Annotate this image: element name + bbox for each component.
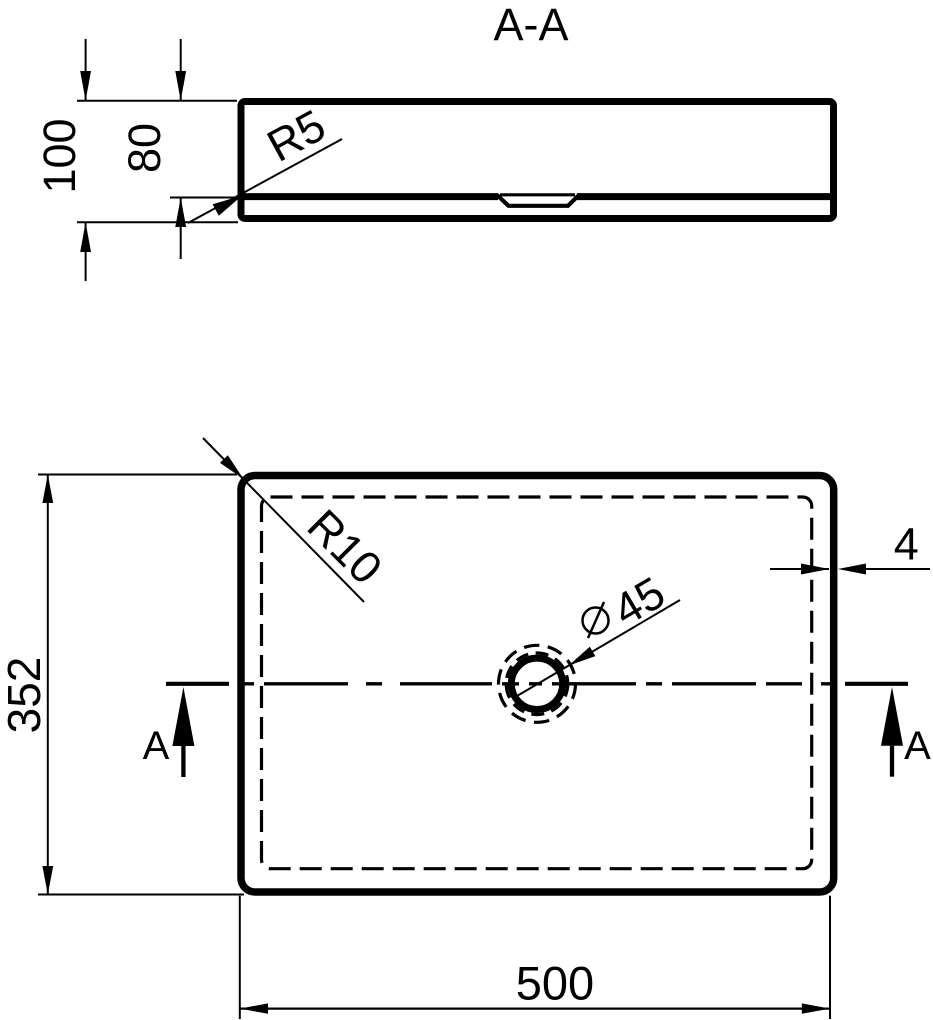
svg-text:A-A: A-A (493, 0, 568, 50)
svg-text:80: 80 (119, 123, 170, 173)
svg-text:500: 500 (516, 957, 594, 1010)
svg-text:A: A (904, 724, 931, 768)
svg-text:352: 352 (0, 657, 50, 734)
svg-text:4: 4 (894, 519, 919, 570)
svg-text:A: A (143, 724, 170, 768)
svg-text:100: 100 (34, 118, 85, 193)
